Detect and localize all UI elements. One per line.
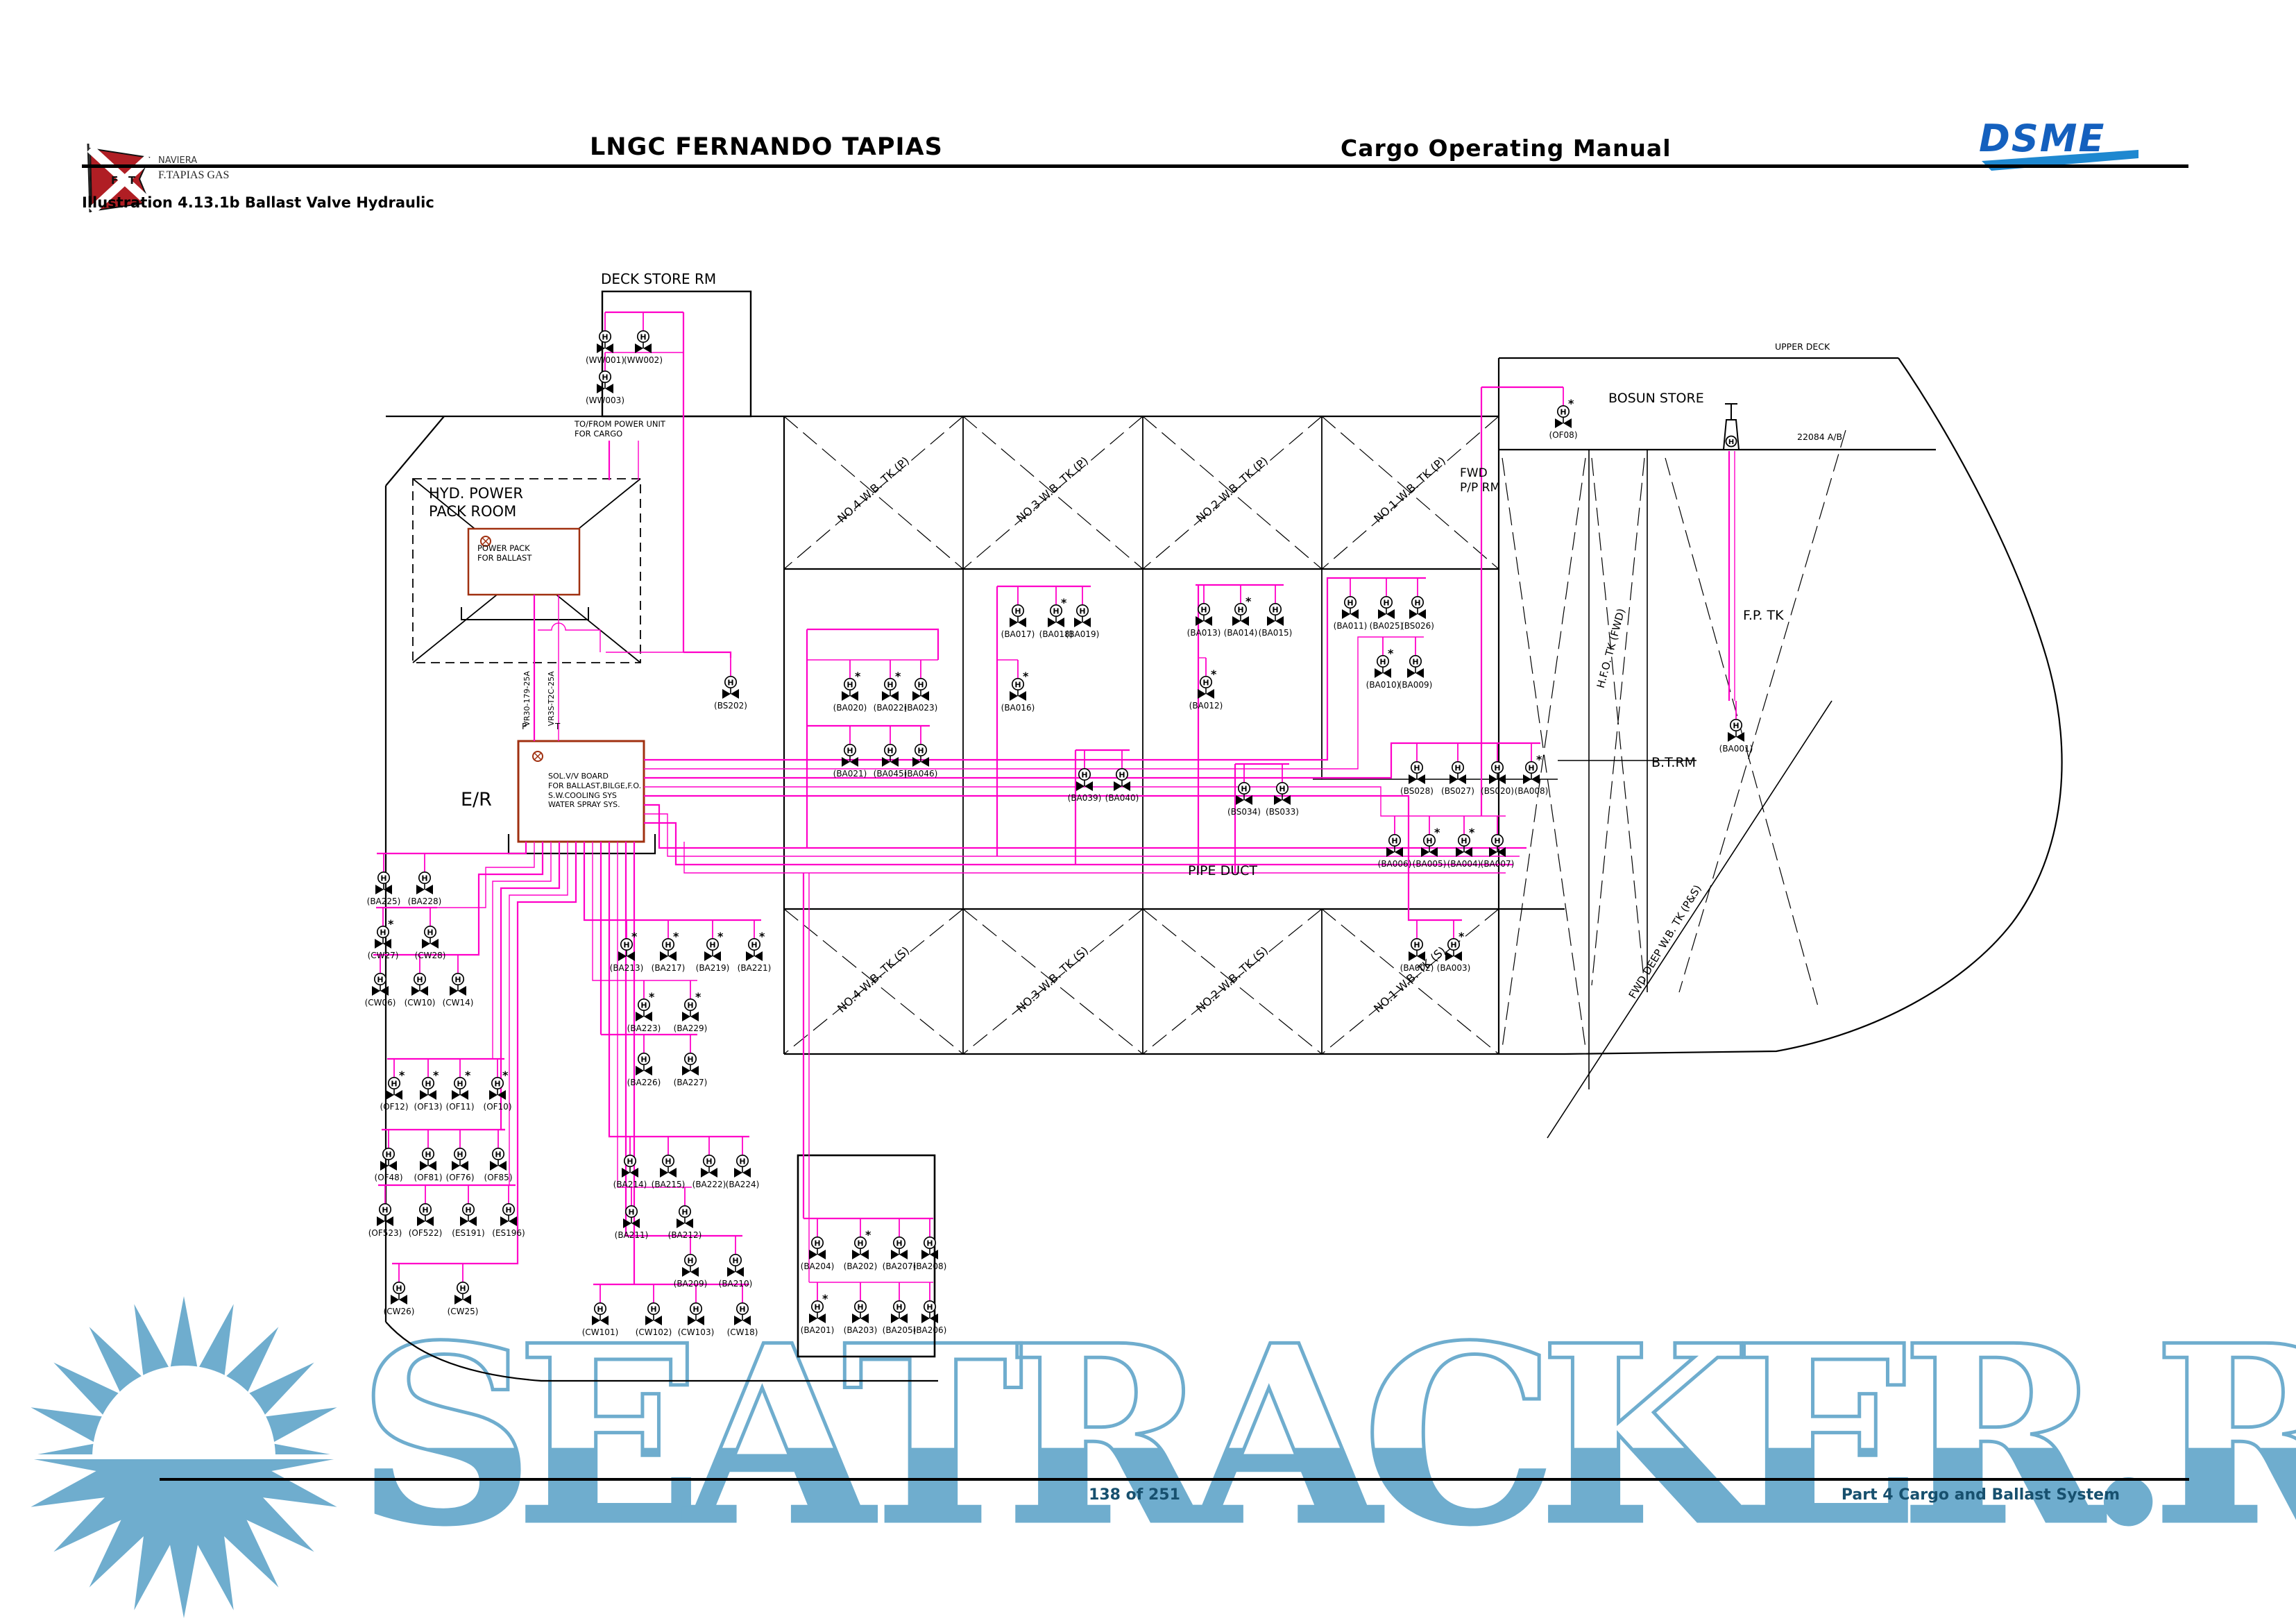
svg-text:H: H bbox=[1414, 598, 1420, 607]
svg-text:H: H bbox=[1200, 605, 1207, 614]
valve-label: (BA016) bbox=[1001, 703, 1035, 713]
valve-cw102: H(CW102) bbox=[636, 1303, 672, 1337]
svg-text:H: H bbox=[505, 1205, 511, 1214]
valve-label: (OF523) bbox=[368, 1228, 402, 1238]
valve-label: (BA222) bbox=[692, 1180, 726, 1189]
svg-text:H: H bbox=[623, 940, 629, 949]
valve-cw25: H(CW25) bbox=[448, 1282, 479, 1316]
valve-bs034: H(BS034) bbox=[1227, 783, 1261, 817]
valve-label: (OF76) bbox=[446, 1173, 475, 1182]
svg-text:H: H bbox=[422, 1205, 428, 1214]
svg-text:H: H bbox=[887, 746, 893, 755]
valve-ba210: H(BA210) bbox=[719, 1255, 753, 1289]
star-mark: * bbox=[822, 1292, 828, 1305]
valve-label: (BA007) bbox=[1481, 859, 1515, 869]
valve-label: (BA014) bbox=[1224, 628, 1258, 638]
valve-label: (BA228) bbox=[408, 897, 442, 906]
valve-ba017: H(BA017) bbox=[1001, 605, 1035, 639]
svg-text:H: H bbox=[1079, 606, 1085, 615]
valve-label: (BS028) bbox=[1400, 786, 1434, 796]
bt-rm-label: B.T.RM bbox=[1651, 755, 1696, 772]
valve-ww003: H(WW003) bbox=[586, 371, 624, 405]
svg-text:H: H bbox=[917, 680, 924, 689]
svg-text:H: H bbox=[709, 940, 715, 949]
svg-text:H: H bbox=[391, 1079, 397, 1088]
valve-ba211: H(BA211) bbox=[615, 1206, 649, 1240]
valve-label: (BA226) bbox=[627, 1078, 661, 1087]
valve-label: (BA205) bbox=[883, 1325, 917, 1335]
star-mark: * bbox=[1061, 596, 1067, 609]
valve-ba225: H(BA225) bbox=[367, 872, 401, 906]
svg-text:H: H bbox=[926, 1302, 933, 1311]
valve-label: (CW18) bbox=[727, 1327, 758, 1337]
page-title: LNGC FERNANDO TAPIAS bbox=[590, 133, 943, 161]
footer-section: Part 4 Cargo and Ballast System bbox=[1804, 1486, 2120, 1504]
valve-label: (BS034) bbox=[1227, 807, 1261, 817]
company-name-line2: F.TAPIAS GAS bbox=[158, 169, 229, 182]
svg-text:H: H bbox=[377, 975, 383, 984]
svg-text:H: H bbox=[1413, 763, 1420, 772]
star-mark: * bbox=[1536, 753, 1542, 766]
valve-ba015: H(BA015) bbox=[1259, 604, 1293, 638]
svg-text:H: H bbox=[1202, 678, 1209, 687]
valve-ba021: H(BA021) bbox=[833, 745, 867, 779]
svg-text:H: H bbox=[687, 1256, 693, 1265]
svg-text:H: H bbox=[421, 874, 427, 883]
valve-label: (BA004) bbox=[1447, 859, 1481, 869]
valve-ba013: H(BA013) bbox=[1187, 604, 1221, 638]
to-from-power-unit-label: TO/FROM POWER UNIT FOR CARGO bbox=[575, 419, 665, 439]
valve-label: (OF13) bbox=[414, 1102, 443, 1112]
sol-board-label: SOL.V/V BOARD FOR BALLAST,BILGE,F.O. S.W… bbox=[548, 772, 641, 810]
valve-cw10: H(CW10) bbox=[405, 974, 436, 1008]
star-mark: * bbox=[895, 670, 901, 683]
svg-text:H: H bbox=[1728, 439, 1734, 446]
valve-label: (BA211) bbox=[615, 1230, 649, 1240]
valve-label: (BA012) bbox=[1189, 701, 1223, 711]
svg-text:H: H bbox=[1119, 770, 1125, 779]
valve-label: (BA003) bbox=[1437, 963, 1471, 973]
svg-text:H: H bbox=[926, 1239, 933, 1248]
valve-label: (BA011) bbox=[1334, 621, 1368, 631]
valve-label: (BA006) bbox=[1378, 859, 1412, 869]
valve-ba205: H(BA205) bbox=[883, 1301, 917, 1335]
svg-text:H: H bbox=[427, 928, 433, 937]
footer-rule bbox=[160, 1478, 2189, 1481]
svg-text:H: H bbox=[1412, 657, 1418, 666]
star-mark: * bbox=[1388, 647, 1394, 660]
valve-label: (CW25) bbox=[448, 1307, 479, 1316]
valve-label: (ES196) bbox=[492, 1228, 525, 1238]
svg-text:H: H bbox=[425, 1150, 431, 1159]
valve-label: (BA203) bbox=[844, 1325, 878, 1335]
breadth-dim-label: 22084 A/B bbox=[1797, 432, 1842, 443]
tank-bracing bbox=[784, 416, 1846, 1054]
star-mark: * bbox=[631, 930, 638, 943]
upper-deck-label: UPPER DECK bbox=[1775, 341, 1830, 352]
valve-label: (OF81) bbox=[414, 1173, 443, 1182]
svg-text:H: H bbox=[665, 940, 671, 949]
svg-text:H: H bbox=[1241, 784, 1247, 793]
valve-label: (BA223) bbox=[627, 1023, 661, 1033]
svg-text:H: H bbox=[396, 1284, 402, 1293]
star-mark: * bbox=[465, 1069, 471, 1082]
star-mark: * bbox=[865, 1228, 871, 1241]
valve-cw28: H(CW28) bbox=[415, 926, 446, 960]
valve-label: (BA020) bbox=[833, 703, 867, 713]
svg-text:H: H bbox=[1347, 598, 1353, 607]
valve-label: (BA207) bbox=[883, 1261, 917, 1271]
pipe-duct-label: PIPE DUCT bbox=[1188, 863, 1257, 880]
svg-text:H: H bbox=[640, 1055, 647, 1064]
svg-text:H: H bbox=[385, 1150, 391, 1159]
valve-label: (WW002) bbox=[624, 355, 663, 365]
svg-text:H: H bbox=[1528, 763, 1534, 772]
valve-label: (BA221) bbox=[738, 963, 772, 973]
svg-text:H: H bbox=[1383, 598, 1389, 607]
svg-text:H: H bbox=[732, 1256, 738, 1265]
valve-es191: H(ES191) bbox=[452, 1204, 484, 1238]
valve-label: (BA022) bbox=[874, 703, 908, 713]
star-mark: * bbox=[649, 990, 655, 1003]
svg-text:H: H bbox=[640, 1001, 647, 1010]
svg-text:H: H bbox=[857, 1239, 863, 1248]
valve-ba025: H(BA025) bbox=[1370, 597, 1404, 631]
star-mark: * bbox=[1568, 397, 1574, 410]
valve-label: (BA001) bbox=[1719, 744, 1753, 754]
valve-cw101: H(CW101) bbox=[582, 1303, 619, 1337]
fp-tank-label: F.P. TK bbox=[1743, 608, 1784, 624]
svg-text:H: H bbox=[425, 1079, 431, 1088]
valve-ba214: H(BA214) bbox=[613, 1155, 647, 1189]
valve-of76: H(OF76) bbox=[446, 1148, 475, 1182]
valve-label: (CW101) bbox=[582, 1327, 619, 1337]
svg-text:H: H bbox=[814, 1239, 820, 1248]
valve-label: (CW06) bbox=[365, 998, 396, 1008]
svg-text:H: H bbox=[1494, 763, 1500, 772]
valve-label: (OF85) bbox=[484, 1173, 513, 1182]
svg-text:H: H bbox=[887, 680, 893, 689]
valve-label: (BA005) bbox=[1413, 859, 1447, 869]
star-mark: * bbox=[1434, 826, 1440, 839]
valve-label: (BA021) bbox=[833, 769, 867, 779]
svg-text:H: H bbox=[681, 1207, 688, 1216]
svg-text:H: H bbox=[416, 975, 423, 984]
valve-label: (CW10) bbox=[405, 998, 436, 1008]
valve-label: (BA208) bbox=[913, 1261, 947, 1271]
valve-cw18: H(CW18) bbox=[727, 1303, 758, 1337]
manual-title: Cargo Operating Manual bbox=[1341, 135, 1672, 162]
valve-label: (BA013) bbox=[1187, 628, 1221, 638]
svg-text:H: H bbox=[739, 1157, 745, 1166]
valve-label: (BS027) bbox=[1441, 786, 1474, 796]
svg-text:H: H bbox=[1379, 657, 1386, 666]
svg-text:H: H bbox=[857, 1302, 863, 1311]
dsme-logo: DSME bbox=[1979, 117, 2138, 171]
svg-text:H: H bbox=[1081, 770, 1087, 779]
valve-bs202: H(BS202) bbox=[714, 677, 747, 711]
valve-label: (BA008) bbox=[1515, 786, 1549, 796]
valve-label: (ES191) bbox=[452, 1228, 484, 1238]
valve-label: (BA017) bbox=[1001, 629, 1035, 639]
valve-label: (BA229) bbox=[674, 1023, 708, 1033]
valve-of48: H(OF48) bbox=[375, 1148, 403, 1182]
svg-text:H: H bbox=[847, 746, 853, 755]
svg-text:H: H bbox=[706, 1157, 712, 1166]
valve-label: (BA046) bbox=[904, 769, 938, 779]
valve-bs026: H(BS026) bbox=[1401, 597, 1434, 631]
vr-line1-label: VR30-179-25A bbox=[522, 654, 532, 744]
svg-text:H: H bbox=[1454, 763, 1461, 772]
valve-label: (OF48) bbox=[375, 1173, 403, 1182]
valve-label: (BA219) bbox=[696, 963, 730, 973]
valve-ba203: H(BA203) bbox=[844, 1301, 878, 1335]
valve-ba208: H(BA208) bbox=[913, 1237, 947, 1271]
svg-text:H: H bbox=[495, 1150, 501, 1159]
svg-text:H: H bbox=[650, 1305, 656, 1314]
power-pack-label: POWER PACK FOR BALLAST bbox=[477, 543, 532, 563]
valve-ba206: H(BA206) bbox=[913, 1301, 947, 1335]
svg-text:H: H bbox=[896, 1302, 902, 1311]
valve-label: (OF11) bbox=[446, 1102, 475, 1112]
valve-label: (BA209) bbox=[674, 1279, 708, 1289]
valve-label: (OF12) bbox=[380, 1102, 409, 1112]
svg-text:H: H bbox=[454, 975, 461, 984]
valve-label: (BS020) bbox=[1481, 786, 1514, 796]
valve-ba224: H(BA224) bbox=[726, 1155, 760, 1189]
svg-text:H: H bbox=[1272, 605, 1278, 614]
valve-label: (BA010) bbox=[1366, 680, 1400, 690]
valve-label: (WW003) bbox=[586, 396, 624, 405]
valve-ba207: H(BA207) bbox=[883, 1237, 917, 1271]
valve-ba215: H(BA215) bbox=[652, 1155, 686, 1189]
svg-text:H: H bbox=[1426, 836, 1432, 845]
valve-label: (BA224) bbox=[726, 1180, 760, 1189]
valve-label: (BA015) bbox=[1259, 628, 1293, 638]
valve-ww001: H(WW001) bbox=[586, 331, 624, 365]
valve-ba204: H(BA204) bbox=[801, 1237, 835, 1271]
valve-label: (BA201) bbox=[801, 1325, 835, 1335]
vr-line2-label: VR3S-T2C-25A bbox=[547, 654, 556, 744]
svg-text:H: H bbox=[687, 1001, 693, 1010]
valve-es196: H(ES196) bbox=[492, 1204, 525, 1238]
valve-label: (OF08) bbox=[1549, 430, 1578, 440]
svg-text:H: H bbox=[1494, 836, 1500, 845]
svg-text:H: H bbox=[1733, 721, 1739, 730]
hyd-room-label: HYD. POWER PACK ROOM bbox=[429, 484, 523, 521]
valve-label: (BA215) bbox=[652, 1180, 686, 1189]
valve-ba212: H(BA212) bbox=[668, 1206, 702, 1240]
star-mark: * bbox=[1245, 595, 1252, 608]
svg-text:H: H bbox=[665, 1157, 671, 1166]
valve-label: (BA214) bbox=[613, 1180, 647, 1189]
valve-ba227: H(BA227) bbox=[674, 1053, 708, 1087]
valve-ba019: H(BA019) bbox=[1066, 605, 1100, 639]
valve-of523: H(OF523) bbox=[368, 1204, 402, 1238]
star-mark: * bbox=[502, 1069, 509, 1082]
svg-text:H: H bbox=[382, 1205, 388, 1214]
svg-text:H: H bbox=[602, 332, 608, 341]
svg-text:H: H bbox=[896, 1239, 902, 1248]
valve-label: (BA040) bbox=[1105, 793, 1139, 803]
svg-text:H: H bbox=[380, 874, 386, 883]
valve-label: (BA009) bbox=[1399, 680, 1433, 690]
valve-label: (BA227) bbox=[674, 1078, 708, 1087]
valve-ba046: H(BA046) bbox=[904, 745, 938, 779]
valve-cw14: H(CW14) bbox=[443, 974, 474, 1008]
valve-ba023: H(BA023) bbox=[904, 679, 938, 713]
svg-text:H: H bbox=[1014, 606, 1021, 615]
valve-ba011: H(BA011) bbox=[1334, 597, 1368, 631]
illustration-title: Illustration 4.13.1b Ballast Valve Hydra… bbox=[82, 194, 434, 211]
valve-ww002: H(WW002) bbox=[624, 331, 663, 365]
svg-text:H: H bbox=[627, 1157, 633, 1166]
valve-label: (BA019) bbox=[1066, 629, 1100, 639]
valve-label: (BA202) bbox=[844, 1261, 878, 1271]
valve-label: (BA217) bbox=[652, 963, 686, 973]
valve-of85: H(OF85) bbox=[484, 1148, 513, 1182]
valve-ba040: H(BA040) bbox=[1105, 769, 1139, 803]
svg-text:H: H bbox=[727, 678, 733, 687]
valve-cw103: H(CW103) bbox=[678, 1303, 715, 1337]
svg-text:H: H bbox=[1014, 680, 1021, 689]
svg-text:H: H bbox=[1279, 784, 1285, 793]
valve-label: (BA213) bbox=[610, 963, 644, 973]
valve-ba209: H(BA209) bbox=[674, 1255, 708, 1289]
valve-label: (BA206) bbox=[913, 1325, 947, 1335]
star-mark: * bbox=[1023, 670, 1029, 683]
svg-text:H: H bbox=[457, 1150, 463, 1159]
valve-label: (BA025) bbox=[1370, 621, 1404, 631]
svg-text:H: H bbox=[1461, 836, 1467, 845]
fwd-pp-rm-label: FWD P/P RM bbox=[1460, 466, 1500, 496]
bosun-store-label: BOSUN STORE bbox=[1608, 391, 1704, 407]
svg-text:H: H bbox=[692, 1305, 699, 1314]
valve-label: (BA212) bbox=[668, 1230, 702, 1240]
valve-ba007: H(BA007) bbox=[1481, 835, 1515, 869]
valve-ba039: H(BA039) bbox=[1068, 769, 1102, 803]
valve-ba226: H(BA226) bbox=[627, 1053, 661, 1087]
valve-label: (CW103) bbox=[678, 1327, 715, 1337]
svg-text:H: H bbox=[494, 1079, 500, 1088]
valve-label: (BS033) bbox=[1266, 807, 1299, 817]
valve-label: (BA023) bbox=[904, 703, 938, 713]
star-mark: * bbox=[388, 917, 394, 931]
valve-label: (OF10) bbox=[484, 1102, 512, 1112]
svg-text:H: H bbox=[380, 928, 386, 937]
valve-ba228: H(BA228) bbox=[408, 872, 442, 906]
star-mark: * bbox=[717, 930, 724, 943]
valve-bs033: H(BS033) bbox=[1266, 783, 1299, 817]
valve-label: (CW28) bbox=[415, 951, 446, 960]
valve-label: (BA210) bbox=[719, 1279, 753, 1289]
valve-label: (CW102) bbox=[636, 1327, 672, 1337]
svg-text:H: H bbox=[1391, 836, 1397, 845]
valve-ba001: H(BA001) bbox=[1719, 720, 1753, 754]
valve-of522: H(OF522) bbox=[409, 1204, 443, 1238]
svg-text:H: H bbox=[465, 1205, 471, 1214]
svg-text:H: H bbox=[597, 1305, 603, 1314]
star-mark: * bbox=[695, 990, 701, 1003]
page-number: 138 of 251 bbox=[1072, 1486, 1197, 1504]
svg-text:H: H bbox=[602, 373, 608, 382]
star-mark: * bbox=[1211, 668, 1217, 681]
valve-label: (BA045) bbox=[874, 769, 908, 779]
valve-label: (BA225) bbox=[367, 897, 401, 906]
svg-text:H: H bbox=[1413, 940, 1420, 949]
valve-ba222: H(BA222) bbox=[692, 1155, 726, 1189]
valve-cw06: H(CW06) bbox=[365, 974, 396, 1008]
diagram: H bbox=[0, 0, 2296, 1623]
star-mark: * bbox=[673, 930, 679, 943]
svg-text:H: H bbox=[687, 1055, 693, 1064]
svg-text:H: H bbox=[917, 746, 924, 755]
star-mark: * bbox=[399, 1069, 405, 1082]
svg-text:H: H bbox=[1560, 407, 1566, 416]
valve-of81: H(OF81) bbox=[414, 1148, 443, 1182]
svg-text:H: H bbox=[751, 940, 757, 949]
valve-label: (CW26) bbox=[384, 1307, 415, 1316]
svg-text:H: H bbox=[739, 1305, 745, 1314]
deck-store-label: DECK STORE RM bbox=[601, 271, 716, 288]
valve-cw26: H(CW26) bbox=[384, 1282, 415, 1316]
valve-label: (CW27) bbox=[368, 951, 399, 960]
star-mark: * bbox=[855, 670, 861, 683]
svg-text:H: H bbox=[640, 332, 646, 341]
valve-ba045: H(BA045) bbox=[874, 745, 908, 779]
valve-label: (CW14) bbox=[443, 998, 474, 1008]
valve-label: (WW001) bbox=[586, 355, 624, 365]
valve-label: (BS202) bbox=[714, 701, 747, 711]
svg-text:F: F bbox=[111, 174, 118, 187]
deck-hydrant-icon: H bbox=[1724, 404, 1739, 450]
valve-ba009: H(BA009) bbox=[1399, 656, 1433, 690]
engine-room-label: E/R bbox=[461, 788, 492, 812]
svg-text:H: H bbox=[847, 680, 853, 689]
valve-label: (BA204) bbox=[801, 1261, 835, 1271]
svg-text:H: H bbox=[457, 1079, 463, 1088]
valve-ba006: H(BA006) bbox=[1378, 835, 1412, 869]
manual-page: SEATRACKER.RU SEATRACKER.RU F T DSME NAV… bbox=[0, 0, 2296, 1623]
valve-label: (OF522) bbox=[409, 1228, 443, 1238]
svg-text:H: H bbox=[459, 1284, 466, 1293]
valve-label: (BS026) bbox=[1401, 621, 1434, 631]
star-mark: * bbox=[759, 930, 765, 943]
svg-text:H: H bbox=[1237, 605, 1243, 614]
svg-text:H: H bbox=[628, 1207, 634, 1216]
star-mark: * bbox=[1469, 826, 1475, 839]
header-rule bbox=[82, 164, 2188, 168]
valve-label: (BA039) bbox=[1068, 793, 1102, 803]
svg-text:H: H bbox=[1053, 606, 1059, 615]
svg-text:T: T bbox=[128, 174, 136, 187]
svg-text:H: H bbox=[814, 1302, 820, 1311]
star-mark: * bbox=[433, 1069, 439, 1082]
